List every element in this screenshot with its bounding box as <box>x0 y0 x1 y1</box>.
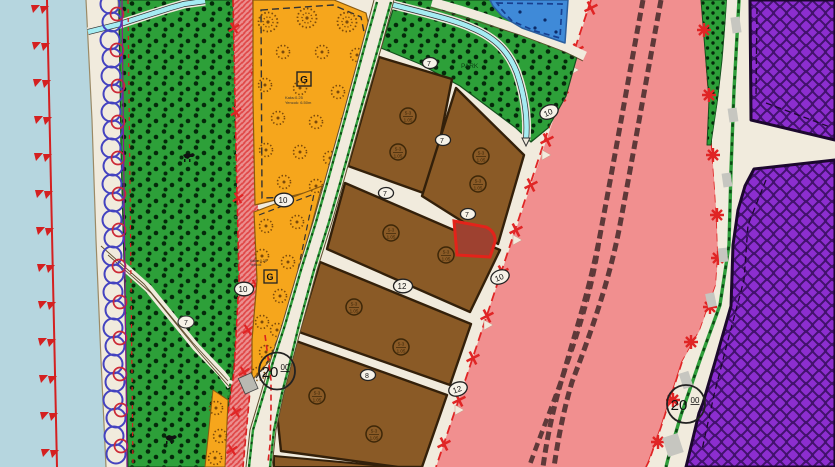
svg-text:7: 7 <box>440 138 444 145</box>
svg-text:8: 8 <box>365 373 369 380</box>
svg-text:PARK: PARK <box>461 63 479 70</box>
svg-text:00: 00 <box>281 363 290 372</box>
svg-text:Yencok: Yencok <box>250 263 262 267</box>
svg-text:7: 7 <box>465 212 469 219</box>
svg-text:12: 12 <box>398 282 407 291</box>
svg-text:10: 10 <box>279 196 288 205</box>
svg-text:10: 10 <box>239 285 248 294</box>
svg-text:00: 00 <box>691 396 700 405</box>
svg-text:G: G <box>266 272 273 282</box>
svg-text:7: 7 <box>427 61 431 68</box>
svg-text:20: 20 <box>671 397 688 414</box>
svg-text:20: 20 <box>262 364 279 381</box>
svg-text:7: 7 <box>184 320 188 327</box>
svg-text:7: 7 <box>383 191 387 198</box>
svg-text:G: G <box>300 75 308 86</box>
svg-text:Yencok: 6.50m: Yencok: 6.50m <box>285 100 312 105</box>
